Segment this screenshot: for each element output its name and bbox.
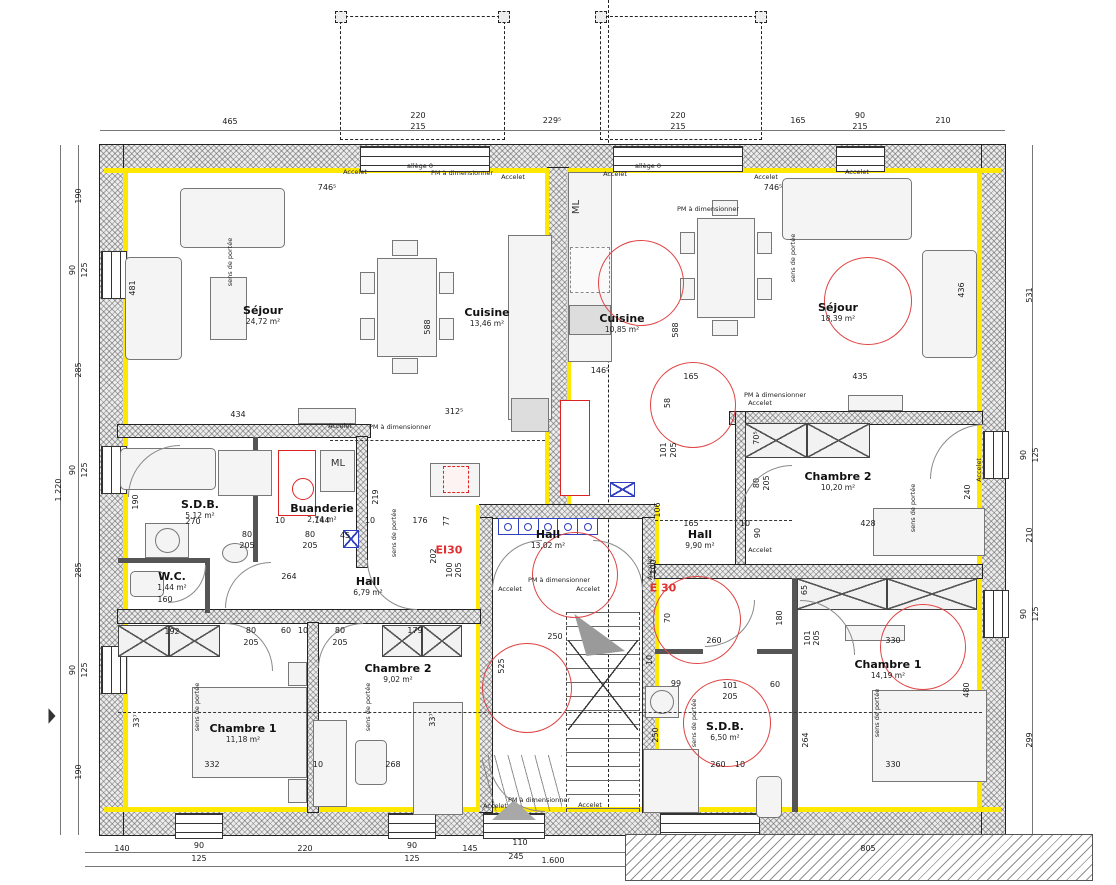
dimension-label: 125	[404, 855, 419, 863]
dimension-label: 10	[275, 517, 285, 525]
dimension-label: 285	[75, 362, 83, 377]
sofa	[125, 257, 182, 360]
chair	[360, 272, 375, 294]
nightstand	[288, 779, 307, 803]
dimension-label: 481	[129, 280, 137, 295]
dimension-label: 250	[652, 727, 660, 742]
accelet-label: Accelet	[328, 423, 352, 430]
chair	[439, 272, 454, 294]
window	[983, 590, 1009, 638]
accelet-label: Accelet	[343, 169, 367, 176]
dimension-label: 10	[740, 520, 750, 528]
duct-shaft	[610, 482, 635, 497]
accelet-label: Accelet	[748, 547, 772, 554]
dimension-label: 125	[81, 662, 89, 677]
e30-label: E 30	[650, 583, 677, 594]
accelet-label: Accelet	[576, 586, 600, 593]
wardrobe	[422, 625, 462, 657]
accelet-label: Accelet	[976, 458, 983, 482]
chair	[757, 232, 772, 254]
dimension-label: 220	[670, 112, 685, 120]
dimension-label: 210	[1026, 527, 1034, 542]
wardrobe	[807, 423, 870, 458]
mailbox	[499, 519, 519, 534]
dimension-label: 205	[813, 630, 821, 645]
sens-label: sens de portée	[691, 699, 698, 747]
chair	[392, 240, 418, 256]
room-label: Chambre 210,20 m²	[804, 470, 871, 492]
accelet-label: Accelet	[748, 400, 772, 407]
pm-label: PM à dimensionner	[744, 392, 806, 399]
dimension-label: 205	[455, 562, 463, 577]
accelet-label: Accelet	[647, 556, 654, 580]
dimension-label: 145	[462, 845, 477, 853]
dimension-label: 531	[1026, 287, 1034, 302]
dimension-label: 205	[243, 639, 258, 647]
room-name: Chambre 1	[209, 722, 276, 735]
chair	[439, 318, 454, 340]
accelet-label: Accelet	[578, 802, 602, 809]
dimension-label: 10	[735, 761, 745, 769]
room-area: 6,50 m²	[706, 733, 744, 742]
dimension-label: 165	[683, 520, 698, 528]
room-label: Hall9,90 m²	[685, 528, 714, 550]
single-bed	[413, 702, 463, 815]
room-area: 14,19 m²	[854, 671, 921, 680]
room-label: Hall6,79 m²	[353, 575, 382, 597]
dimension-label: 110	[512, 839, 527, 847]
dimension-label: 746⁵	[764, 184, 782, 192]
dining-table	[697, 218, 755, 318]
room-name: Hall	[531, 528, 565, 541]
dimension-label: 1.600	[542, 857, 565, 865]
room-label: Chambre 111,18 m²	[209, 722, 276, 744]
dimension-label: 80	[335, 627, 345, 635]
room-name: Buanderie	[290, 502, 353, 515]
dimension-label: 101	[804, 630, 812, 645]
dimension-label: 146⁵	[591, 367, 609, 375]
double-bed	[873, 508, 985, 556]
dimension-label: 90	[407, 842, 417, 850]
nightstand	[288, 662, 307, 686]
kitchen-sink	[511, 398, 549, 432]
room-area: 9,90 m²	[685, 541, 714, 550]
accelet-label: Accelet	[498, 586, 522, 593]
dimension-label: 125	[191, 855, 206, 863]
dimension-label: 176	[412, 517, 427, 525]
dormer-post	[595, 11, 607, 23]
accelet-label: Accelet	[603, 171, 627, 178]
sens-label: sens de portée	[194, 683, 201, 731]
sofa	[782, 178, 912, 240]
dimension-label: 106	[654, 502, 662, 517]
room-label: Hall13,02 m²	[531, 528, 565, 550]
room-label: W.C.1,44 m²	[157, 570, 186, 592]
pm-label: PM à dimensionner	[369, 424, 431, 431]
dimension-label: 205	[722, 693, 737, 701]
dim-line-top	[100, 130, 1005, 131]
dimension-label: 100	[446, 562, 454, 577]
dimension-label: 190	[75, 188, 83, 203]
dimension-label: 144	[314, 517, 329, 525]
dimension-label: 264	[802, 732, 810, 747]
hob	[443, 466, 469, 493]
chair	[360, 318, 375, 340]
dimension-label: 125	[1032, 606, 1040, 621]
dimension-label: 10	[365, 517, 375, 525]
dimension-label: 180	[776, 610, 784, 625]
dimension-label: 436	[958, 282, 966, 297]
room-area: 6,79 m²	[353, 588, 382, 597]
room-area: 10,20 m²	[804, 483, 871, 492]
dimension-label: 33⁷	[429, 713, 437, 726]
pm-label: PM à dimensionner	[528, 577, 590, 584]
room-label: Séjour24,72 m²	[243, 304, 283, 326]
dimension-label: 65	[801, 585, 809, 595]
floor-plan: Séjour24,72 m²Cuisine13,46 m²Cuisine10,8…	[0, 0, 1116, 885]
room-area: 10,85 m²	[599, 325, 644, 334]
dimension-label: 330	[885, 637, 900, 645]
ml-label: ML	[331, 459, 345, 469]
dimension-label: 205	[332, 639, 347, 647]
allege-label: allège 0	[635, 163, 661, 170]
dimension-label: 299	[1026, 732, 1034, 747]
beam-line	[330, 440, 545, 441]
room-label: S.D.B.6,50 m²	[706, 720, 744, 742]
dimension-label: 205	[302, 542, 317, 550]
sens-label: sens de portée	[910, 484, 917, 532]
chair	[712, 320, 738, 336]
dormer-post	[335, 11, 347, 23]
room-label: Chambre 29,02 m²	[364, 662, 431, 684]
dimension-label: 70	[664, 613, 672, 623]
dimension-label: 165	[790, 117, 805, 125]
coffee-table	[210, 277, 247, 340]
room-area: 11,18 m²	[209, 735, 276, 744]
room-name: Chambre 1	[854, 658, 921, 671]
dimension-label: 90	[69, 665, 77, 675]
room-name: W.C.	[157, 570, 186, 583]
room-name: Séjour	[818, 301, 858, 314]
washbasin-bowl	[155, 528, 180, 553]
dimension-label: 215	[852, 123, 867, 131]
dimension-label: 312⁵	[445, 408, 463, 416]
wardrobe	[118, 625, 169, 657]
dimension-label: 125	[81, 262, 89, 277]
sideboard	[848, 395, 903, 411]
dimension-label: 268	[385, 761, 400, 769]
dimension-label: 330	[885, 761, 900, 769]
accelet-label: Accelet	[845, 169, 869, 176]
dimension-label: 90	[1020, 609, 1028, 619]
sens-label: sens de portée	[391, 509, 398, 557]
dimension-label: 220	[297, 845, 312, 853]
stair-core-wall-top	[480, 505, 655, 518]
dimension-label: 525	[498, 658, 506, 673]
room-name: Cuisine	[599, 312, 644, 325]
allege-label: allège 0	[407, 163, 433, 170]
dimension-label: 179	[407, 627, 422, 635]
dimension-label: 220	[410, 112, 425, 120]
dimension-label: 80	[246, 627, 256, 635]
terrace-hatch	[625, 834, 1093, 881]
window	[175, 813, 223, 839]
room-area: 1,44 m²	[157, 583, 186, 592]
shower	[218, 450, 272, 496]
dimension-label: 90	[1020, 450, 1028, 460]
chair	[757, 278, 772, 300]
dimension-label: 192	[164, 628, 179, 636]
pm-label: PM à dimensionner	[431, 170, 493, 177]
sens-label: sens de portée	[790, 234, 797, 282]
dimension-label: 90	[754, 528, 762, 538]
dimension-label: 80	[305, 531, 315, 539]
dimension-label: 270	[185, 518, 200, 526]
dimension-label: 588	[672, 322, 680, 337]
sens-label: sens de portée	[365, 683, 372, 731]
wall-left-bedroom-band	[118, 610, 480, 623]
outer-wall-bottom	[100, 812, 1005, 835]
room-name: Chambre 2	[804, 470, 871, 483]
room-area: 18,39 m²	[818, 314, 858, 323]
ei30-label: EI30	[436, 545, 463, 556]
dimension-label: 428	[860, 520, 875, 528]
dimension-label: 260	[706, 637, 721, 645]
dimension-label: 90	[69, 465, 77, 475]
dimension-label: 90	[69, 265, 77, 275]
dimension-label: 210	[935, 117, 950, 125]
dimension-label: 465	[222, 118, 237, 126]
dimension-label: 205	[670, 442, 678, 457]
dimension-label: 250	[547, 633, 562, 641]
dimension-label: 160	[157, 596, 172, 604]
accelet-label: Accelet	[483, 803, 507, 810]
kitchen-counter	[508, 235, 552, 420]
dimension-label: 215	[670, 123, 685, 131]
room-name: Hall	[685, 528, 714, 541]
benchmark-marker	[49, 708, 56, 723]
dimension-label: 10	[313, 761, 323, 769]
room-area: 24,72 m²	[243, 317, 283, 326]
dimension-label: 10	[298, 627, 308, 635]
window	[983, 431, 1009, 479]
dimension-label: 219	[372, 489, 380, 504]
room-name: S.D.B.	[706, 720, 744, 733]
dimension-label: 260	[710, 761, 725, 769]
dimension-label: 45	[340, 532, 350, 540]
window	[101, 251, 127, 299]
dimension-label: 229⁵	[543, 117, 561, 125]
washbasin-bowl	[650, 690, 674, 714]
dimension-label: 33⁷	[133, 714, 141, 727]
dimension-label: 60	[281, 627, 291, 635]
dimension-label: 125	[81, 462, 89, 477]
room-area: 9,02 m²	[364, 675, 431, 684]
washing-machine	[320, 450, 355, 492]
dimension-label: 245	[508, 853, 523, 861]
dimension-label: 70⁵	[753, 431, 761, 444]
ml-label: ML	[572, 200, 582, 214]
pm-label: PM à dimensionner	[508, 797, 570, 804]
dimension-label: 140	[114, 845, 129, 853]
room-label: Cuisine13,46 m²	[464, 306, 509, 328]
accelet-label: Accelet	[754, 174, 778, 181]
dimension-label: 125	[1032, 447, 1040, 462]
dimension-label: 215	[410, 123, 425, 131]
dim-line-left	[78, 145, 79, 835]
boiler	[560, 400, 590, 496]
dimension-label: 434	[230, 411, 245, 419]
dimension-label: 746⁵	[318, 184, 336, 192]
dimension-label: 101	[660, 442, 668, 457]
dimension-label: 80	[242, 531, 252, 539]
dimension-label: 80	[753, 478, 761, 488]
dimension-label: 90	[194, 842, 204, 850]
pm-label: PM à dimensionner	[677, 206, 739, 213]
room-name: Cuisine	[464, 306, 509, 319]
office-chair	[355, 740, 387, 785]
dimension-label: 1.220	[55, 479, 63, 502]
dimension-label: 435	[852, 373, 867, 381]
axis-line	[655, 520, 792, 521]
room-name: Séjour	[243, 304, 283, 317]
dimension-label: 10	[646, 655, 654, 665]
stair-travel-line	[568, 640, 638, 730]
chair	[392, 358, 418, 374]
sens-label: sens de portée	[227, 238, 234, 286]
window	[388, 813, 436, 839]
wall-right-hall-chambre1	[792, 578, 798, 812]
accelet-label: Accelet	[501, 174, 525, 181]
dimension-label: 805	[860, 845, 875, 853]
room-label: Chambre 114,19 m²	[854, 658, 921, 680]
dimension-label: 588	[424, 319, 432, 334]
dimension-label: 99	[671, 680, 681, 688]
room-area: 13,46 m²	[464, 319, 509, 328]
door-swing	[225, 562, 271, 608]
window	[613, 146, 743, 172]
dimension-label: 205	[763, 475, 771, 490]
wall-right-hall-chambre2	[736, 412, 745, 567]
dimension-label: 240	[964, 484, 972, 499]
dimension-label: 264	[281, 573, 296, 581]
dimension-label: 101	[722, 682, 737, 690]
dimension-label: 190	[132, 494, 140, 509]
dimension-label: 165	[683, 373, 698, 381]
dormer-post	[755, 11, 767, 23]
door-swing	[740, 465, 792, 517]
shower	[643, 749, 699, 813]
dimension-label: 205	[239, 542, 254, 550]
toilet	[756, 776, 782, 818]
dormer-post	[498, 11, 510, 23]
dimension-label: 58	[664, 398, 672, 408]
dimension-label: 332	[204, 761, 219, 769]
dining-table	[377, 258, 437, 357]
room-name: Chambre 2	[364, 662, 431, 675]
room-area: 13,02 m²	[531, 541, 565, 550]
chair	[680, 232, 695, 254]
dimension-label: 90	[855, 112, 865, 120]
sens-label: sens de portée	[874, 689, 881, 737]
sofa	[922, 250, 977, 358]
dimension-label: 190	[75, 764, 83, 779]
dimension-label: 77	[443, 516, 451, 526]
dimension-label: 285	[75, 562, 83, 577]
room-name: S.D.B.	[181, 498, 219, 511]
room-label: Cuisine10,85 m²	[599, 312, 644, 334]
room-name: Hall	[353, 575, 382, 588]
room-label: Séjour18,39 m²	[818, 301, 858, 323]
dimension-label: 60	[770, 681, 780, 689]
wall-left-sdb-wc-sep	[118, 558, 210, 563]
dimension-label: 480	[963, 682, 971, 697]
wall-right-sdb-top-b	[757, 649, 795, 654]
stair-insulation-left	[476, 505, 480, 812]
ceiling-circle-mark	[482, 643, 572, 733]
boiler-pipe	[292, 478, 314, 500]
